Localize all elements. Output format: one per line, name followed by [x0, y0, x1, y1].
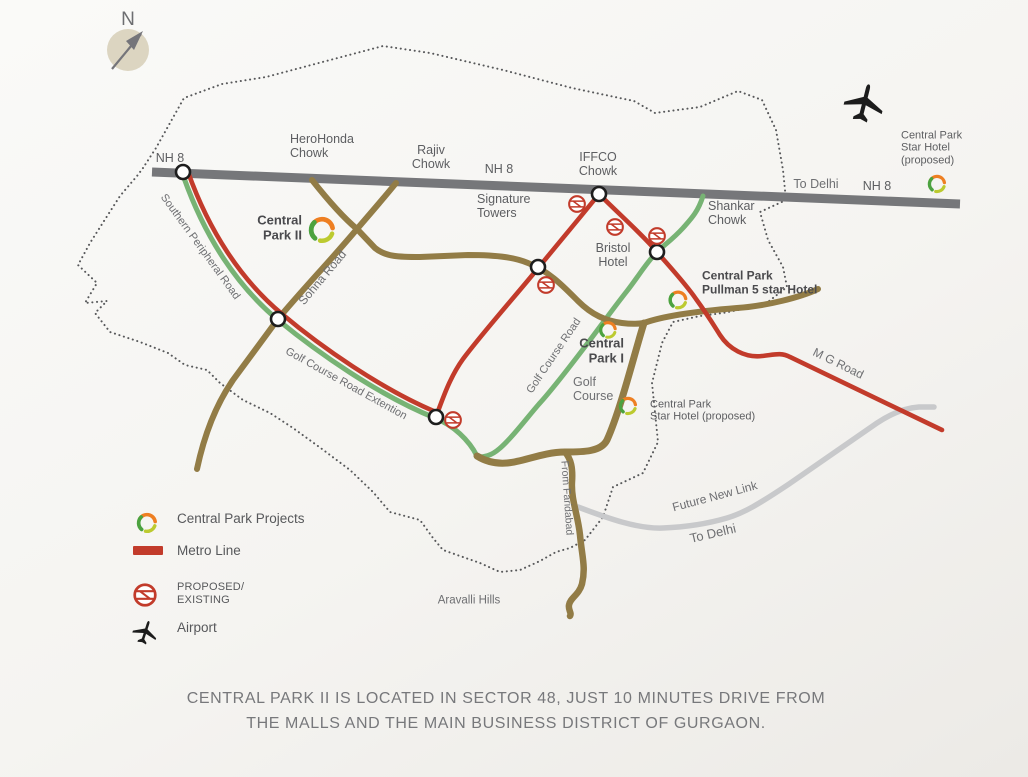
- label-nh8-right: NH 8: [863, 179, 891, 193]
- label-sohna-road: Sohna Road: [296, 248, 349, 308]
- label-shankar-chowk: Shankar Chowk: [708, 199, 755, 227]
- label-nh8-center: NH 8: [485, 162, 513, 176]
- legend-item-proposed-existing: PROPOSED/ EXISTING: [133, 581, 244, 607]
- legend-label: Metro Line: [177, 543, 241, 558]
- label-bristol-hotel: Bristol Hotel: [596, 241, 631, 269]
- label-mg-road: M G Road: [810, 346, 865, 382]
- label-nh8-left: NH 8: [156, 151, 184, 165]
- label-central-park-1: Central Park I: [579, 336, 624, 365]
- label-cp-star-hotel-mid: Central Park Star Hotel (proposed): [650, 399, 755, 424]
- label-southern-peripheral-road: Southern Peripheral Road: [158, 192, 243, 302]
- label-golf-course-road-extention: Golf Course Road Extention: [283, 345, 409, 422]
- label-aravalli-hills: Aravalli Hills: [438, 595, 501, 608]
- label-golf-course: Golf Course: [573, 375, 613, 403]
- label-cp-star-hotel-ne: Central Park Star Hotel (proposed): [901, 129, 962, 166]
- legend-item-central-park-projects: Central Park Projects: [133, 511, 305, 526]
- label-cp-pullman: Central Park Pullman 5 star Hotel: [702, 269, 817, 296]
- label-iffco-chowk: IFFCO Chowk: [579, 150, 617, 178]
- label-from-faridabad: From Faridabad: [557, 460, 574, 535]
- caption-line-1: CENTRAL PARK II IS LOCATED IN SECTOR 48,…: [0, 686, 1012, 711]
- caption-line-2: THE MALLS AND THE MAIN BUSINESS DISTRICT…: [0, 711, 1012, 736]
- legend-item-metro-line: Metro Line: [133, 543, 241, 558]
- label-central-park-2: Central Park II: [257, 213, 302, 242]
- legend-item-airport: Airport: [133, 620, 217, 635]
- label-to-delhi-se: To Delhi: [688, 522, 737, 547]
- metro-line-swatch: [133, 546, 163, 555]
- label-rajiv-chowk: Rajiv Chowk: [412, 143, 450, 171]
- label-future-new-link: Future New Link: [671, 479, 759, 515]
- label-herohonda-chowk: HeroHonda Chowk: [290, 132, 354, 160]
- legend-label: PROPOSED/ EXISTING: [177, 581, 244, 607]
- legend-label: Airport: [177, 620, 217, 635]
- legend-label: Central Park Projects: [177, 511, 305, 526]
- gurgaon-location-map: N NH 8HeroHonda ChowkRajiv ChowkNH 8IFFC…: [0, 0, 1028, 777]
- label-to-delhi-top: To Delhi: [793, 177, 838, 191]
- map-labels-layer: NH 8HeroHonda ChowkRajiv ChowkNH 8IFFCO …: [0, 0, 1028, 777]
- label-signature-towers: Signature Towers: [477, 192, 531, 220]
- map-caption: CENTRAL PARK II IS LOCATED IN SECTOR 48,…: [0, 686, 1012, 736]
